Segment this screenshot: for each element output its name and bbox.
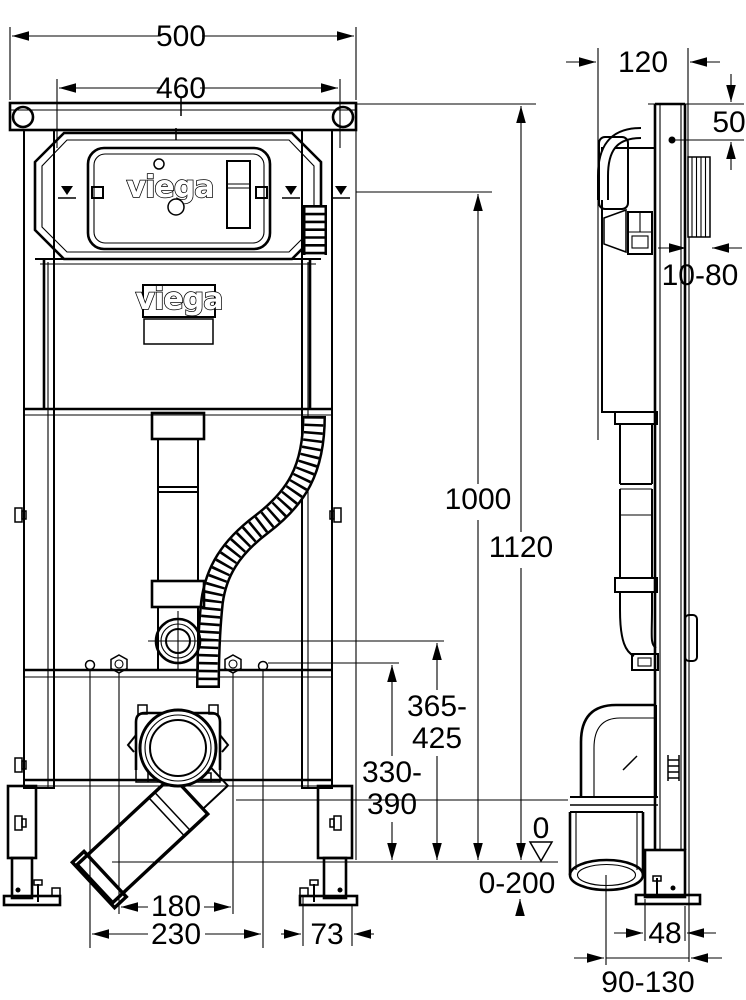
dim-side-frame-depth: 120	[618, 46, 668, 79]
wall-section	[688, 48, 710, 962]
viega-logo-cistern: viega	[136, 282, 223, 317]
drain-socket-bracket	[128, 705, 228, 786]
rail-left	[24, 130, 54, 788]
dim-side-wall-thickness: 10-80	[662, 259, 739, 292]
dim-side-outlet-wall-distance: 90-130	[601, 966, 694, 999]
dim-side-foot-width: 48	[648, 917, 681, 950]
dim-supply-height-bottom: 425	[412, 722, 462, 755]
dim-foot-depth: 73	[310, 918, 343, 951]
dim-outlet-offset-outer: 230	[151, 918, 201, 951]
dim-floor-zero: 0	[533, 812, 550, 845]
dim-supply-height-top: 365-	[407, 690, 467, 723]
foot-right	[318, 786, 352, 858]
viega-logo-plate: viega	[127, 170, 214, 205]
cistern: viega	[24, 259, 332, 415]
dim-front-width-outer: 500	[156, 20, 206, 53]
supply-hose	[208, 205, 315, 688]
foot-side	[645, 850, 685, 897]
dim-floor-adjust-range: 0-200	[479, 867, 556, 900]
front-feet	[4, 786, 357, 905]
side-view: 120 50 10-80 48 90-130	[566, 46, 746, 999]
dim-fixing-height-bottom: 390	[367, 788, 417, 821]
wall-bracket	[685, 615, 697, 661]
installation-frame-drawing: viega viega	[0, 0, 746, 1000]
drain-socket	[140, 710, 216, 786]
dim-fixing-height-top: 330-	[362, 756, 422, 789]
plate-clip-right	[256, 187, 267, 198]
finished-wall-hatch	[688, 157, 710, 237]
flush-buttons	[227, 161, 250, 228]
dim-front-height-total: 1120	[489, 531, 554, 564]
technical-drawing-page: viega viega	[0, 0, 746, 1000]
dim-front-height-reference: 1000	[445, 483, 512, 516]
dim-side-top-fixing-offset: 50	[712, 106, 745, 139]
front-view: viega viega	[4, 20, 568, 951]
logo-dot-small	[154, 159, 164, 169]
dim-front-width-inner: 460	[156, 72, 206, 105]
side-cistern	[599, 133, 655, 412]
side-flush-pipe	[615, 412, 658, 670]
logo-dot-large	[168, 199, 184, 215]
cistern-label-box-empty	[144, 319, 213, 344]
adjustment-rack-icon	[668, 755, 679, 781]
